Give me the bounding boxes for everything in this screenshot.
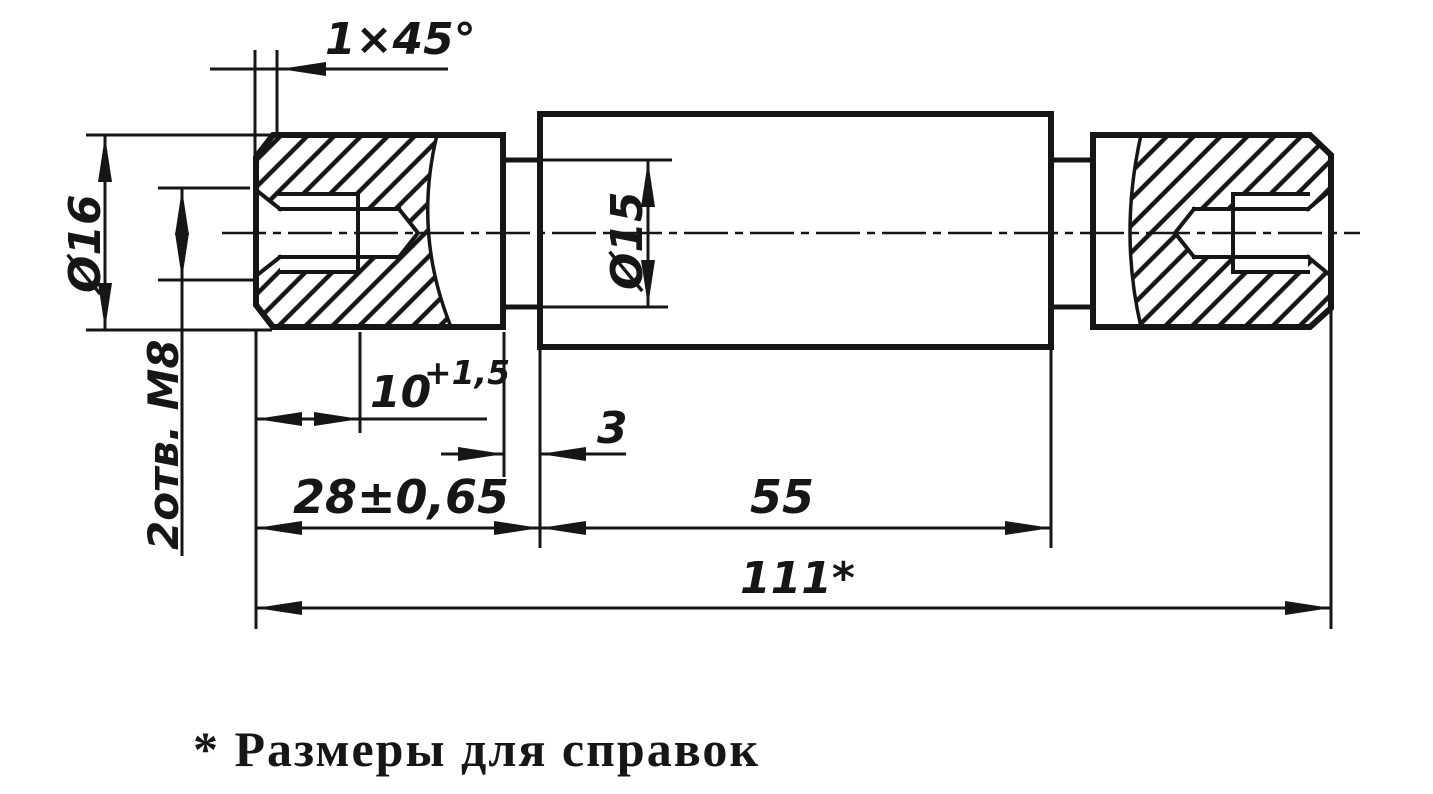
technical-drawing-page: 1×45° Ø16 2отв. М8 Ø15 10 +1,5 3 28±0,65… bbox=[0, 0, 1433, 794]
overall-length-label: 111* bbox=[740, 553, 855, 604]
neck-width-label: 3 bbox=[597, 403, 628, 454]
shaft-diameter-label: Ø15 bbox=[602, 191, 653, 293]
thread-holes-label: 2отв. М8 bbox=[139, 339, 188, 550]
shaft-drawing-canvas: 1×45° Ø16 2отв. М8 Ø15 10 +1,5 3 28±0,65… bbox=[0, 0, 1433, 794]
thread-depth-label: 10 bbox=[370, 367, 431, 418]
outer-diameter-label: Ø16 bbox=[60, 194, 111, 296]
body-length-label: 55 bbox=[750, 470, 814, 524]
dimension-labels: 1×45° Ø16 2отв. М8 Ø15 10 +1,5 3 28±0,65… bbox=[60, 14, 855, 604]
chamfer-dimension-label: 1×45° bbox=[325, 14, 476, 65]
head-length-label: 28±0,65 bbox=[293, 470, 509, 524]
reference-dimensions-note: * Размеры для справок bbox=[193, 721, 760, 777]
thread-depth-tolerance-label: +1,5 bbox=[424, 353, 510, 392]
